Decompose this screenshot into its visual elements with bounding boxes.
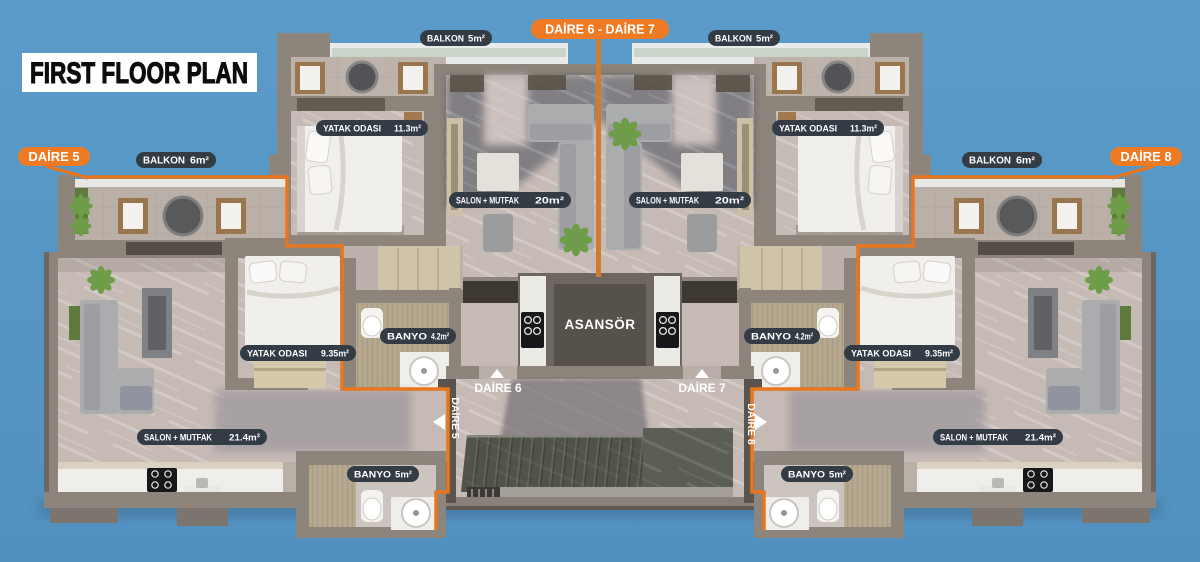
svg-text:BALKON: BALKON bbox=[969, 156, 1011, 167]
svg-text:5m²: 5m² bbox=[468, 34, 485, 45]
svg-text:BANYO: BANYO bbox=[354, 470, 391, 481]
svg-text:SALON + MUTFAK: SALON + MUTFAK bbox=[636, 196, 699, 207]
svg-text:11.3m²: 11.3m² bbox=[394, 124, 421, 135]
svg-text:20m²: 20m² bbox=[535, 196, 564, 207]
svg-text:21.4m²: 21.4m² bbox=[1025, 433, 1056, 444]
svg-text:21.4m²: 21.4m² bbox=[229, 433, 260, 444]
svg-text:9.35m²: 9.35m² bbox=[321, 349, 349, 360]
svg-text:20m²: 20m² bbox=[715, 196, 744, 207]
svg-text:DAİRE 5: DAİRE 5 bbox=[449, 397, 462, 439]
svg-text:DAİRE 6: DAİRE 6 bbox=[474, 380, 522, 395]
svg-text:4.2m²: 4.2m² bbox=[431, 332, 449, 343]
svg-text:11.3m²: 11.3m² bbox=[850, 124, 877, 135]
svg-text:6m²: 6m² bbox=[190, 156, 210, 167]
svg-text:YATAK ODASI: YATAK ODASI bbox=[851, 349, 911, 360]
svg-text:BANYO: BANYO bbox=[788, 470, 825, 481]
svg-text:YATAK ODASI: YATAK ODASI bbox=[247, 349, 307, 360]
svg-text:DAİRE 7: DAİRE 7 bbox=[678, 380, 726, 395]
svg-text:4.2m²: 4.2m² bbox=[795, 332, 813, 343]
svg-text:SALON + MUTFAK: SALON + MUTFAK bbox=[940, 433, 1008, 444]
svg-text:DAİRE 5: DAİRE 5 bbox=[28, 149, 79, 164]
svg-text:BALKON: BALKON bbox=[715, 34, 752, 45]
svg-text:DAİRE 8: DAİRE 8 bbox=[745, 403, 758, 445]
svg-text:5m²: 5m² bbox=[395, 470, 412, 481]
svg-text:5m²: 5m² bbox=[829, 470, 846, 481]
svg-text:FIRST FLOOR PLAN: FIRST FLOOR PLAN bbox=[30, 57, 248, 90]
svg-text:BALKON: BALKON bbox=[427, 34, 464, 45]
svg-text:BALKON: BALKON bbox=[143, 156, 185, 167]
svg-text:DAİRE 8: DAİRE 8 bbox=[1120, 149, 1171, 164]
svg-text:9.35m²: 9.35m² bbox=[925, 349, 953, 360]
svg-text:BANYO: BANYO bbox=[387, 332, 427, 343]
svg-text:DAİRE 6 - DAİRE 7: DAİRE 6 - DAİRE 7 bbox=[545, 22, 655, 37]
svg-text:6m²: 6m² bbox=[1016, 156, 1036, 167]
svg-text:SALON + MUTFAK: SALON + MUTFAK bbox=[144, 433, 212, 444]
svg-text:5m²: 5m² bbox=[756, 34, 773, 45]
svg-text:ASANSÖR: ASANSÖR bbox=[564, 317, 635, 332]
svg-text:BANYO: BANYO bbox=[751, 332, 791, 343]
svg-text:SALON + MUTFAK: SALON + MUTFAK bbox=[456, 196, 519, 207]
svg-text:YATAK ODASI: YATAK ODASI bbox=[779, 124, 837, 135]
svg-text:YATAK ODASI: YATAK ODASI bbox=[323, 124, 381, 135]
